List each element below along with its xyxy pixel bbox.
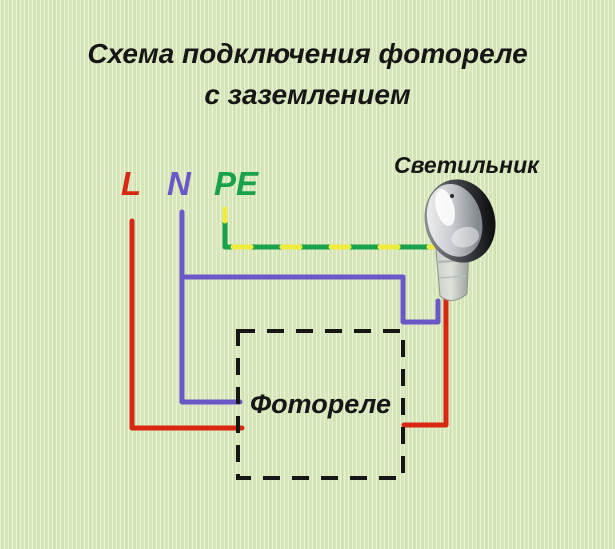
wiring-diagram: Схема подключения фотореле с заземлением… [0,0,615,549]
photorelay-label: Фотореле [238,331,403,478]
wire-earth-pe [225,221,433,247]
lamp-head-screw [450,194,454,198]
lamp-graphic [415,171,504,300]
wire-neutral-n [182,212,240,402]
wire-neutral-branch-to-lamp [182,277,438,322]
wire-phase-l [132,221,242,428]
